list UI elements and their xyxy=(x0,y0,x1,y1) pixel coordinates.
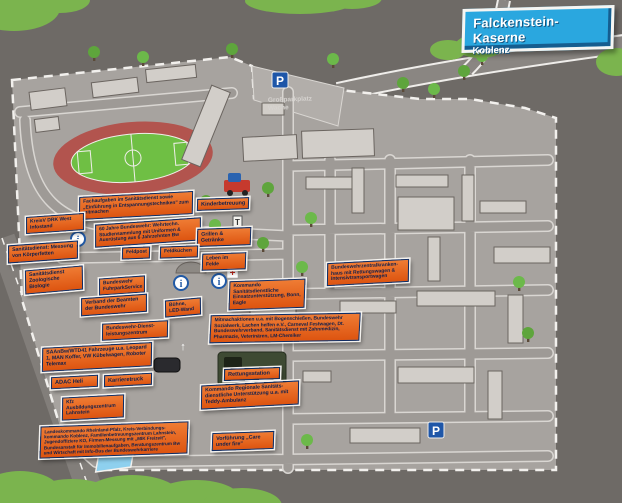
building xyxy=(306,177,352,189)
building xyxy=(428,237,440,281)
building xyxy=(34,117,59,133)
building xyxy=(398,367,474,383)
building xyxy=(350,428,420,443)
building xyxy=(417,291,495,306)
building xyxy=(398,197,454,230)
building xyxy=(494,247,550,263)
title-banner: Falckenstein-Kaserne Koblenz xyxy=(461,5,614,53)
map-label-bw-zentralkrankenhaus: Bundeswehrzentralkranken­haus mit Rettun… xyxy=(327,259,409,286)
map-label-mitmachaktionen: Mitmachaktionen u.a. mit Bogenschießen, … xyxy=(209,313,360,344)
road-arrow-icon: ↑ xyxy=(180,341,186,353)
building xyxy=(462,175,474,221)
parking-letter: P xyxy=(276,74,284,88)
map-label-buehne: Bühne, LED-Wand xyxy=(165,297,201,318)
map-label-bw-dlz: Bundeswehr-Dienst­leistungszentrum xyxy=(102,320,168,341)
map-label-adac-heli: ADAC Heli xyxy=(51,375,98,390)
map-label-feldkuechen: Feldküchen xyxy=(160,245,198,258)
info-letter: i xyxy=(180,279,183,290)
dark-car xyxy=(154,358,180,372)
map-label-rettungsstation: Rettungsstation xyxy=(224,367,280,381)
parking-sign-bottom: P xyxy=(428,422,444,438)
map-label-vorfuehrung: Vorführung „Care under fire" xyxy=(212,431,275,451)
sign-icon: T xyxy=(233,216,242,228)
info-icon: i xyxy=(212,274,226,288)
building xyxy=(29,88,67,110)
parking-area-label-line2: Wache xyxy=(268,104,289,112)
building xyxy=(396,175,448,187)
map-label-kfz-ausbildung: Kfz Ausbildungszentrum Lahnstein xyxy=(62,394,124,420)
map-label-karrieretruck: Karrieretruck xyxy=(104,373,152,388)
page-title: Falckenstein-Kaserne xyxy=(473,12,604,45)
map-label-grillen: Grillen & Getränke xyxy=(197,227,252,247)
building xyxy=(242,135,297,162)
building xyxy=(352,168,364,213)
sign-letter: T xyxy=(235,218,240,227)
map-label-landeskommando: Landeskommando Rheinland-Pfalz, Kreis-Ve… xyxy=(39,421,188,458)
building xyxy=(480,201,526,213)
building xyxy=(488,371,502,419)
site-map-page: P Großparkplatz Wache P i i i + T ↑ ↑ Fa… xyxy=(0,0,622,503)
map-label-fuhrparkservice: Bundeswehr FuhrparkService xyxy=(99,275,145,296)
building xyxy=(303,371,331,382)
map-label-kdo-san-einsatz: Kommando Sanitätsdienstliche Einsatzunte… xyxy=(229,279,306,310)
building xyxy=(340,301,396,313)
map-label-leben-im-felde: Leben im Felde xyxy=(202,252,247,271)
info-letter: i xyxy=(218,277,221,288)
parking-letter: P xyxy=(432,424,440,438)
map-label-san-biologie: Sanitätsdienst Zoologische Biologie xyxy=(25,265,83,294)
map-label-kinderbetreuung: Kinderbetreuung xyxy=(197,197,249,211)
info-icon: i xyxy=(174,276,188,290)
building xyxy=(508,295,523,343)
parking-sign-top: P xyxy=(272,72,288,88)
map-label-feldpost: Feldpost xyxy=(122,247,150,260)
building xyxy=(302,129,375,158)
